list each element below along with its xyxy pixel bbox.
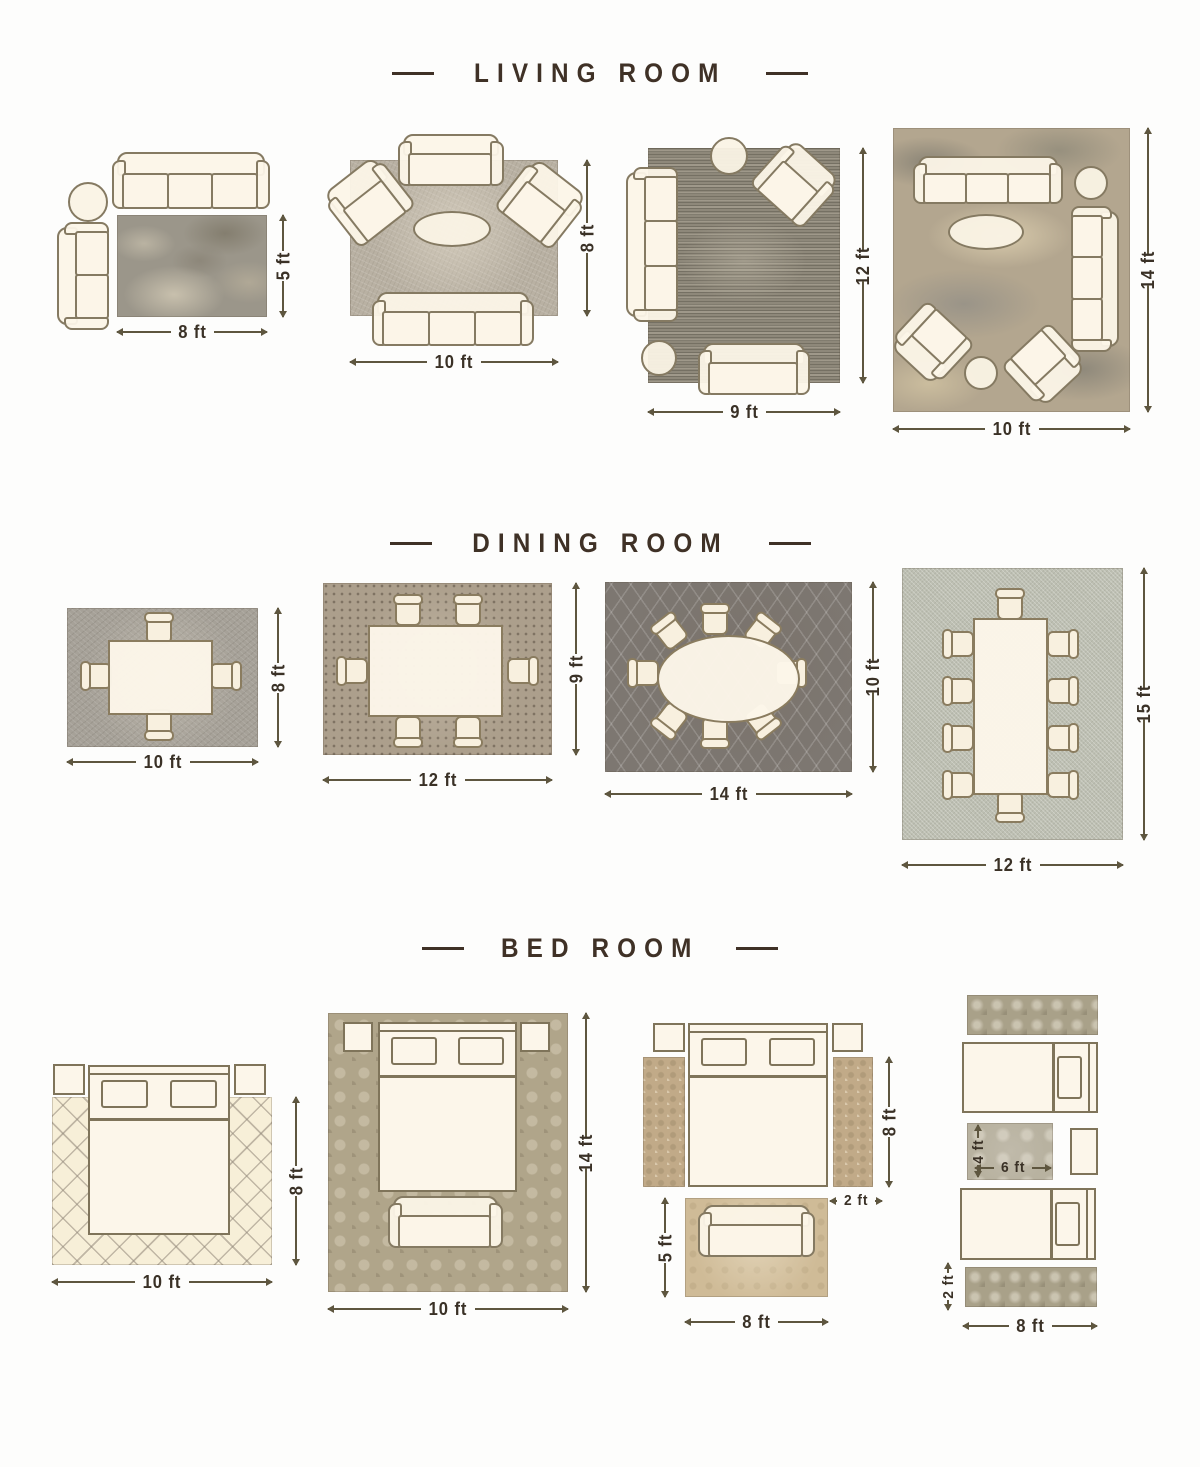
- nightstand: [53, 1064, 85, 1095]
- sofa-arm: [256, 160, 270, 209]
- pillow: [391, 1037, 437, 1065]
- sofa-cushion: [923, 173, 967, 204]
- dim-line: [888, 1137, 890, 1187]
- dim-line: [605, 793, 702, 795]
- runner-rug: [643, 1057, 685, 1187]
- dining-chair: [395, 598, 421, 626]
- blanket-fold: [1050, 1188, 1053, 1260]
- area-rug: [117, 215, 267, 317]
- dining-room-layout-3: 14 ft 10 ft: [600, 575, 890, 810]
- dim-line: [1052, 1325, 1098, 1327]
- headboard: [690, 1025, 826, 1033]
- sofa-cushions: [75, 233, 109, 319]
- sofa-cushion: [1071, 215, 1103, 258]
- dim-label: 2 ft: [844, 1193, 868, 1208]
- dim-line: [947, 1300, 949, 1310]
- dim-label: 14 ft: [1139, 251, 1157, 290]
- bed-room-layout-3: 8 ft 2 ft 5 ft 8 ft: [640, 1015, 910, 1340]
- dim-runner-width: 2 ft: [830, 1193, 882, 1208]
- pillow: [101, 1080, 148, 1108]
- sofa-cushion: [167, 173, 214, 209]
- bed: [688, 1023, 828, 1187]
- sofa-cushion: [644, 265, 678, 311]
- dim-line: [277, 608, 279, 663]
- round-side-table: [964, 356, 998, 390]
- dim-line: [1143, 568, 1145, 689]
- sofa-cushion: [708, 1224, 803, 1257]
- dim-line: [902, 864, 986, 866]
- dim-width: 12 ft: [323, 771, 552, 789]
- sofa-arm: [1049, 163, 1063, 204]
- nightstand: [520, 1022, 550, 1052]
- sofa-cushion: [1007, 173, 1051, 204]
- dim-line: [585, 1168, 587, 1293]
- dining-room-layout-2: 12 ft 9 ft: [315, 580, 595, 800]
- sofa-cushion: [408, 153, 492, 186]
- heading-dash: [769, 542, 811, 545]
- round-side-table: [710, 137, 748, 175]
- sofa-arm: [801, 1212, 815, 1257]
- pillow: [1057, 1056, 1082, 1099]
- dim-label: 10 ft: [992, 420, 1031, 438]
- rug-size-guide: LIVING ROOM 8 ft 5 ft: [0, 0, 1200, 1467]
- dim-label: 15 ft: [1135, 685, 1153, 724]
- bed: [88, 1065, 230, 1235]
- blanket-fold: [378, 1075, 517, 1078]
- dim-line: [862, 148, 864, 251]
- section-title: BED ROOM: [501, 935, 699, 962]
- dining-table: [368, 625, 503, 717]
- round-side-table: [641, 340, 677, 376]
- dim-label: 12 ft: [993, 856, 1032, 874]
- dining-chair: [702, 607, 728, 635]
- dim-line: [1143, 719, 1145, 840]
- dim-line: [977, 1125, 979, 1138]
- dim-label: 8 ft: [178, 323, 207, 341]
- sofa-cushions: [384, 311, 522, 346]
- round-side-table: [1074, 166, 1108, 200]
- dim-line: [277, 693, 279, 748]
- sofa-cushions: [400, 1215, 491, 1248]
- dim-width: 8 ft: [117, 323, 267, 341]
- dim-line: [947, 1263, 949, 1273]
- dim-line: [862, 281, 864, 384]
- runner-rug: [833, 1057, 873, 1187]
- dim-line: [282, 281, 284, 317]
- dim-line: [1032, 1167, 1051, 1169]
- three-seat-sofa: [372, 292, 534, 346]
- headboard: [380, 1024, 515, 1032]
- dim-label: 5 ft: [656, 1233, 674, 1262]
- dim-line: [872, 582, 874, 662]
- dining-chair: [1047, 772, 1075, 798]
- dining-chair: [455, 598, 481, 626]
- bed-room-layout-2: 10 ft 14 ft: [325, 1008, 615, 1328]
- dining-chair: [631, 660, 659, 686]
- dim-runner-width: 2 ft: [937, 1263, 959, 1310]
- sofa-cushions: [410, 153, 492, 186]
- dim-label: 9 ft: [730, 403, 759, 421]
- dim-line: [872, 692, 874, 772]
- section-heading-dining-room: DINING ROOM: [0, 530, 1200, 557]
- dim-line: [664, 1263, 666, 1298]
- sofa-cushion: [644, 176, 678, 222]
- dining-chair: [997, 791, 1023, 819]
- dining-chair: [455, 716, 481, 744]
- dim-line: [575, 684, 577, 755]
- dim-label: 10 ft: [435, 353, 474, 371]
- dim-line: [189, 1281, 272, 1283]
- dining-table: [973, 618, 1048, 795]
- headboard: [1086, 1190, 1088, 1258]
- dim-runner-length: 8 ft: [878, 1057, 900, 1187]
- dim-line: [778, 1321, 828, 1323]
- dim-width: 10 ft: [350, 353, 558, 371]
- section-title: DINING ROOM: [472, 530, 729, 557]
- heading-dash: [736, 947, 778, 950]
- sofa-back: [1100, 211, 1119, 347]
- dim-line: [830, 1200, 837, 1202]
- dim-line: [893, 428, 985, 430]
- loveseat: [57, 222, 109, 330]
- sofa-arm: [490, 141, 504, 186]
- dim-line: [585, 1013, 587, 1138]
- dim-line: [1040, 864, 1124, 866]
- dining-chair: [210, 663, 238, 689]
- dim-height: 12 ft: [852, 148, 874, 383]
- sofa-cushion: [75, 274, 109, 319]
- dim-width: 14 ft: [605, 785, 852, 803]
- dining-chair: [1047, 678, 1075, 704]
- dim-label: 14 ft: [577, 1133, 595, 1172]
- pillow: [769, 1038, 815, 1066]
- dim-label: 8 ft: [1016, 1317, 1045, 1335]
- three-seat-sofa: [112, 152, 270, 209]
- oval-coffee-table: [413, 211, 491, 247]
- dim-label: 10 ft: [864, 658, 882, 697]
- twin-bed: [962, 1042, 1098, 1113]
- three-seat-sofa: [913, 156, 1063, 204]
- dim-label: 2 ft: [941, 1274, 956, 1298]
- dim-foot-rug-height: 5 ft: [654, 1198, 676, 1297]
- sofa-cushions: [644, 178, 678, 311]
- dim-line: [52, 1281, 135, 1283]
- dim-label: 9 ft: [567, 655, 585, 684]
- dim-label: 10 ft: [429, 1300, 468, 1318]
- section-title: LIVING ROOM: [474, 60, 726, 87]
- dim-line: [1147, 285, 1149, 412]
- pillow: [1055, 1202, 1080, 1246]
- dim-line: [888, 1057, 890, 1107]
- sofa-cushion: [382, 311, 430, 346]
- dim-label: 8 ft: [578, 224, 596, 253]
- dim-line: [190, 761, 259, 763]
- oval-dining-table: [657, 635, 800, 723]
- dim-line: [766, 411, 841, 413]
- dim-width: 9 ft: [648, 403, 840, 421]
- dim-label: 8 ft: [287, 1167, 305, 1196]
- heading-dash: [422, 947, 464, 950]
- oval-coffee-table: [948, 214, 1024, 250]
- dim-runner-length: 8 ft: [963, 1317, 1097, 1335]
- sofa-cushion: [428, 311, 476, 346]
- dim-line: [328, 1308, 421, 1310]
- sofa-cushions: [925, 173, 1051, 204]
- dim-label: 6 ft: [1001, 1160, 1025, 1175]
- dim-line: [475, 1308, 568, 1310]
- dim-label: 14 ft: [709, 785, 748, 803]
- dim-line: [756, 793, 853, 795]
- headboard: [1088, 1044, 1090, 1111]
- dining-chair: [1047, 725, 1075, 751]
- dim-line: [214, 331, 268, 333]
- three-seat-sofa: [626, 167, 678, 322]
- dining-chair: [395, 716, 421, 744]
- dim-line: [481, 361, 558, 363]
- heading-dash: [392, 72, 434, 75]
- dim-line: [350, 361, 427, 363]
- dim-line: [1039, 428, 1131, 430]
- dim-label: 12 ft: [418, 771, 457, 789]
- dining-table: [108, 640, 213, 715]
- dim-label: 8 ft: [880, 1108, 898, 1137]
- dim-line: [975, 1167, 994, 1169]
- dim-height: 8 ft: [285, 1097, 307, 1265]
- loveseat: [698, 1205, 815, 1257]
- heading-dash: [766, 72, 808, 75]
- sofa-cushion: [1071, 298, 1103, 341]
- dim-width: 10 ft: [328, 1300, 568, 1318]
- blanket-fold: [1052, 1042, 1055, 1113]
- dim-height: 5 ft: [272, 215, 294, 317]
- dim-width: 12 ft: [902, 856, 1123, 874]
- nightstand: [343, 1022, 373, 1052]
- dim-height: 9 ft: [565, 583, 587, 755]
- sofa-cushion: [965, 173, 1009, 204]
- nightstand: [1070, 1128, 1098, 1175]
- nightstand: [653, 1023, 685, 1052]
- sofa-cushions: [710, 1224, 803, 1257]
- dining-chair: [946, 772, 974, 798]
- pillow: [701, 1038, 747, 1066]
- bed-room-layout-4: 4 ft 6 ft 2 ft 8 ft: [945, 990, 1165, 1350]
- dim-line: [586, 253, 588, 316]
- dining-chair: [946, 725, 974, 751]
- dim-line: [648, 411, 723, 413]
- blanket-fold: [88, 1118, 230, 1121]
- dim-line: [664, 1198, 666, 1233]
- sofa-arm: [489, 1203, 503, 1248]
- headboard: [90, 1067, 228, 1075]
- dining-room-layout-1: 10 ft 8 ft: [55, 600, 305, 790]
- three-seat-sofa: [1071, 206, 1119, 352]
- runner-rug: [965, 1267, 1097, 1307]
- loveseat: [398, 134, 504, 186]
- dim-line: [67, 761, 136, 763]
- dim-line: [465, 779, 553, 781]
- blanket-fold: [688, 1075, 828, 1078]
- section-heading-living-room: LIVING ROOM: [0, 60, 1200, 87]
- loveseat: [698, 343, 810, 395]
- sofa-cushion: [211, 173, 258, 209]
- dining-chair: [997, 592, 1023, 620]
- dim-line: [323, 779, 411, 781]
- dim-height: 14 ft: [1137, 128, 1159, 412]
- dim-height: 8 ft: [267, 608, 289, 747]
- dim-line: [1147, 128, 1149, 255]
- sofa-cushion: [644, 220, 678, 266]
- living-room-layout-1: 8 ft 5 ft: [50, 140, 310, 355]
- dining-chair: [340, 658, 368, 684]
- dim-height: 15 ft: [1133, 568, 1155, 840]
- nightstand: [832, 1023, 863, 1052]
- bed-room-layout-1: 10 ft 8 ft: [40, 1055, 320, 1305]
- dim-line: [282, 215, 284, 251]
- heading-dash: [390, 542, 432, 545]
- dim-line: [295, 1196, 297, 1265]
- dining-chair: [507, 658, 535, 684]
- dim-height: 10 ft: [862, 582, 884, 772]
- sofa-cushion: [708, 362, 798, 395]
- living-room-layout-3: 9 ft 12 ft: [615, 135, 885, 425]
- dim-line: [586, 160, 588, 223]
- dim-line: [575, 583, 577, 654]
- dining-chair: [946, 631, 974, 657]
- dim-foot-rug-width: 8 ft: [685, 1313, 828, 1331]
- round-side-table: [68, 182, 108, 222]
- bench-loveseat: [388, 1196, 503, 1248]
- dim-middle-rug-width: 6 ft: [975, 1160, 1051, 1175]
- sofa-arm: [796, 350, 810, 395]
- living-room-layout-2: 10 ft 8 ft: [330, 130, 610, 380]
- pillow: [458, 1037, 504, 1065]
- pillow: [170, 1080, 217, 1108]
- dining-chair: [1047, 631, 1075, 657]
- sofa-cushion: [398, 1215, 491, 1248]
- dim-line: [117, 331, 171, 333]
- dim-line: [685, 1321, 735, 1323]
- twin-bed: [960, 1188, 1096, 1260]
- living-room-layout-4: 10 ft 14 ft: [885, 118, 1185, 448]
- sofa-cushions: [710, 362, 798, 395]
- dim-label: 10 ft: [143, 753, 182, 771]
- dim-height: 14 ft: [575, 1013, 597, 1292]
- dim-line: [295, 1097, 297, 1166]
- dim-width: 10 ft: [893, 420, 1130, 438]
- sofa-cushion: [122, 173, 169, 209]
- nightstand: [234, 1064, 266, 1095]
- dim-line: [875, 1200, 882, 1202]
- dim-height: 8 ft: [576, 160, 598, 316]
- dim-line: [963, 1325, 1009, 1327]
- runner-rug: [967, 995, 1098, 1035]
- dim-label: 10 ft: [143, 1273, 182, 1291]
- dining-chair: [946, 678, 974, 704]
- sofa-cushions: [124, 173, 258, 209]
- section-heading-bed-room: BED ROOM: [0, 935, 1200, 962]
- dining-room-layout-4: 12 ft 15 ft: [895, 565, 1175, 885]
- dim-label: 5 ft: [274, 252, 292, 281]
- dim-label: 8 ft: [742, 1313, 771, 1331]
- dim-width: 10 ft: [67, 753, 258, 771]
- bed: [378, 1022, 517, 1192]
- dim-width: 10 ft: [52, 1273, 272, 1291]
- dim-label: 12 ft: [854, 246, 872, 285]
- sofa-cushion: [474, 311, 522, 346]
- sofa-cushion: [75, 231, 109, 276]
- sofa-arm: [520, 300, 534, 346]
- sofa-cushion: [1071, 256, 1103, 299]
- dim-label: 8 ft: [269, 663, 287, 692]
- sofa-cushions: [1071, 217, 1103, 341]
